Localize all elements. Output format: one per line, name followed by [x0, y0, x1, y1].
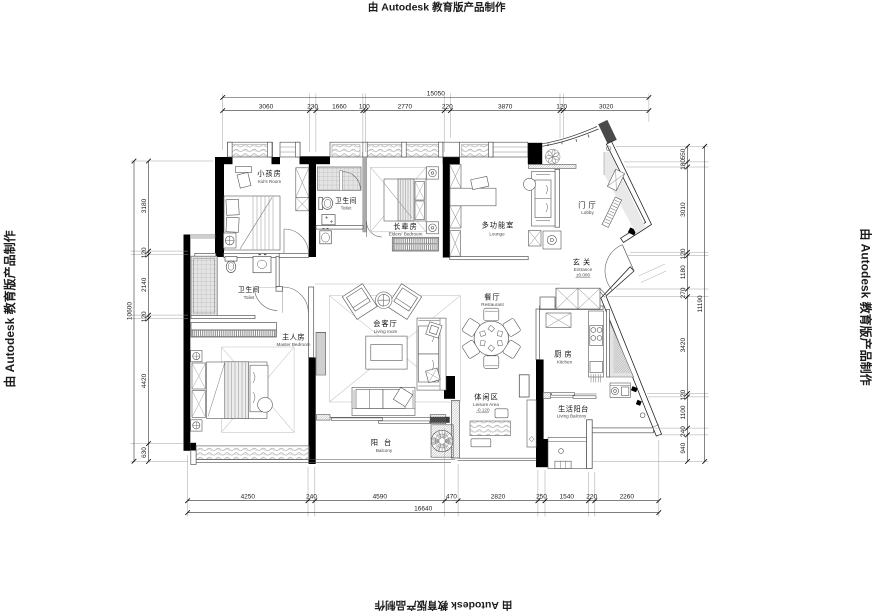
svg-text:由 Autodesk 教育版产品制作: 由 Autodesk 教育版产品制作 [368, 0, 506, 13]
svg-text:100: 100 [359, 103, 370, 110]
svg-text:120: 120 [680, 248, 687, 259]
svg-text:11190: 11190 [697, 295, 704, 312]
svg-text:多功能室: 多功能室 [482, 221, 515, 230]
svg-text:120: 120 [556, 103, 567, 110]
svg-text:由 Autodesk 教育版产品制作: 由 Autodesk 教育版产品制作 [859, 228, 874, 385]
svg-text:主人房: 主人房 [282, 333, 305, 342]
svg-text:Leisure Area: Leisure Area [473, 402, 499, 407]
svg-text:1100: 1100 [680, 405, 687, 419]
svg-text:Toilet: Toilet [244, 295, 255, 300]
svg-text:2770: 2770 [398, 103, 413, 110]
svg-text:卫生间: 卫生间 [238, 285, 260, 294]
svg-text:250: 250 [536, 494, 547, 501]
svg-text:3870: 3870 [498, 103, 513, 110]
svg-text:3180: 3180 [141, 198, 148, 213]
svg-text:4250: 4250 [241, 494, 256, 501]
svg-text:体闲区: 体闲区 [474, 393, 499, 402]
svg-text:厨房: 厨房 [554, 350, 574, 359]
svg-text:220: 220 [586, 494, 597, 501]
svg-text:3420: 3420 [680, 337, 687, 352]
svg-text:Lounge: Lounge [489, 232, 505, 237]
svg-text:230: 230 [307, 103, 318, 110]
svg-text:生活阳台: 生活阳台 [558, 405, 589, 414]
svg-text:3020: 3020 [599, 103, 614, 110]
svg-text:270: 270 [680, 287, 687, 298]
svg-text:2820: 2820 [491, 494, 506, 501]
svg-text:Living Balcony: Living Balcony [557, 414, 587, 419]
svg-text:阳台: 阳台 [371, 438, 397, 447]
svg-text:Toilet: Toilet [341, 206, 352, 211]
svg-text:16640: 16640 [414, 505, 432, 512]
svg-text:550: 550 [680, 148, 687, 159]
svg-text:Balcony: Balcony [376, 448, 393, 453]
svg-text:1660: 1660 [332, 103, 347, 110]
svg-text:630: 630 [141, 447, 148, 458]
svg-text:Entrance: Entrance [574, 267, 593, 272]
svg-text:玄关: 玄关 [573, 258, 593, 267]
svg-text:3010: 3010 [680, 202, 687, 217]
svg-text:4420: 4420 [141, 373, 148, 388]
svg-text:Master Bedroom: Master Bedroom [277, 342, 311, 347]
svg-text:门厅: 门厅 [578, 201, 598, 210]
svg-text:15050: 15050 [427, 90, 445, 97]
svg-text:240: 240 [306, 494, 317, 501]
svg-text:长辈房: 长辈房 [393, 222, 418, 231]
svg-text:由 Autodesk 教育版产品制作: 由 Autodesk 教育版产品制作 [2, 230, 17, 387]
svg-text:120: 120 [141, 247, 148, 258]
svg-text:2140: 2140 [141, 277, 148, 292]
svg-text:120: 120 [680, 389, 687, 400]
svg-text:180: 180 [680, 159, 687, 170]
svg-text:±0.000: ±0.000 [576, 273, 590, 278]
svg-text:240: 240 [680, 426, 687, 437]
svg-text:Lobby: Lobby [581, 210, 594, 215]
svg-text:2260: 2260 [620, 494, 635, 501]
svg-text:餐厅: 餐厅 [484, 293, 500, 302]
svg-text:120: 120 [141, 311, 148, 322]
svg-text:Living room: Living room [374, 329, 398, 334]
svg-text:Elders' Bedroom: Elders' Bedroom [389, 232, 423, 237]
svg-text:小孩房: 小孩房 [257, 169, 282, 178]
svg-text:10600: 10600 [127, 302, 134, 320]
svg-text:220: 220 [442, 103, 453, 110]
svg-text:Restaurant: Restaurant [481, 302, 504, 307]
svg-text:3060: 3060 [259, 103, 274, 110]
svg-text:会客厅: 会客厅 [373, 319, 398, 328]
svg-text:由 Autodesk 教育版产品制作: 由 Autodesk 教育版产品制作 [374, 599, 512, 612]
svg-text:1180: 1180 [680, 265, 687, 279]
svg-text:卫生间: 卫生间 [335, 196, 357, 205]
svg-text:1540: 1540 [560, 494, 575, 501]
svg-text:940: 940 [680, 442, 687, 453]
svg-text:4590: 4590 [373, 494, 388, 501]
svg-text:470: 470 [446, 494, 457, 501]
svg-text:-0.120: -0.120 [476, 408, 489, 413]
svg-text:Kitchen: Kitchen [557, 359, 573, 364]
svg-text:Kid's Room: Kid's Room [258, 179, 282, 184]
